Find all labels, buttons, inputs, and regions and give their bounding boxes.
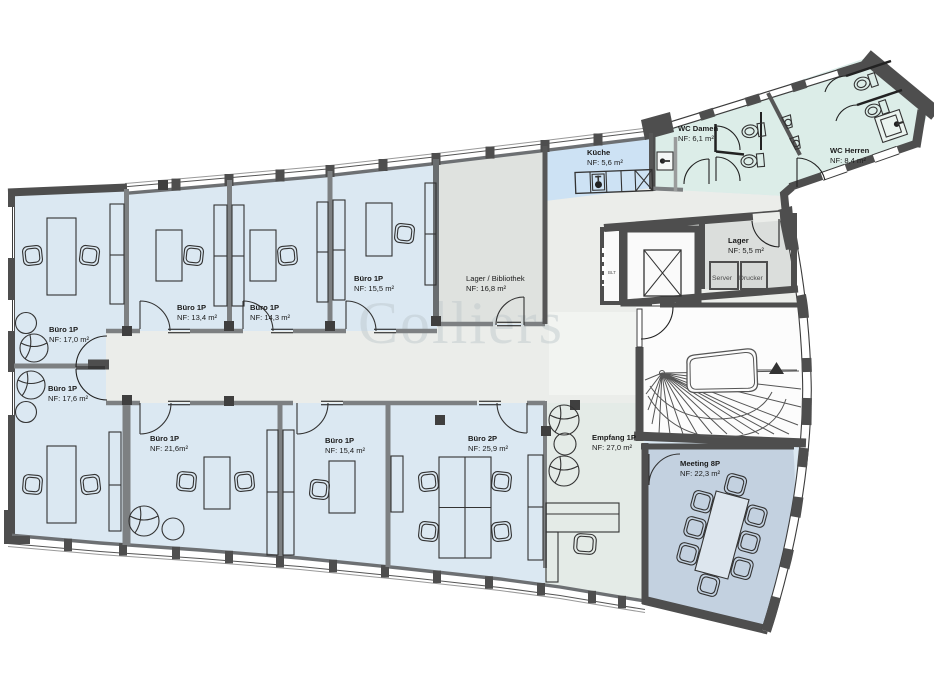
svg-text:Büro 1P: Büro 1P [48,384,77,393]
svg-text:NF: 16,8 m²: NF: 16,8 m² [466,284,507,293]
svg-text:BLT: BLT [608,270,616,275]
svg-text:Büro 2P: Büro 2P [468,434,497,443]
svg-text:NF: 6,1 m²: NF: 6,1 m² [678,134,714,143]
svg-text:NF: 5,5 m²: NF: 5,5 m² [728,246,764,255]
svg-text:NF: 15,4 m²: NF: 15,4 m² [325,446,366,455]
svg-text:NF: 22,3 m²: NF: 22,3 m² [680,469,721,478]
svg-text:Büro 1P: Büro 1P [250,303,279,312]
svg-text:NF: 27,0 m²: NF: 27,0 m² [592,443,633,452]
svg-text:NF: 5,6 m²: NF: 5,6 m² [587,158,623,167]
svg-text:Büro 1P: Büro 1P [325,436,354,445]
svg-text:Büro 1P: Büro 1P [150,434,179,443]
svg-text:Büro 1P: Büro 1P [354,274,383,283]
svg-text:WC Damen: WC Damen [678,124,718,133]
svg-text:NF: 17,0 m²: NF: 17,0 m² [49,335,90,344]
svg-text:NF: 21,6m²: NF: 21,6m² [150,444,188,453]
svg-text:NF: 13,4 m²: NF: 13,4 m² [177,313,218,322]
svg-text:Küche: Küche [587,148,610,157]
svg-text:Büro 1P: Büro 1P [177,303,206,312]
svg-text:Server: Server [712,275,733,282]
svg-text:WC Herren: WC Herren [830,146,870,155]
svg-text:NF: 25,9 m²: NF: 25,9 m² [468,444,509,453]
svg-text:NF: 14,3 m²: NF: 14,3 m² [250,313,291,322]
svg-text:NF: 15,5 m²: NF: 15,5 m² [354,284,395,293]
svg-text:NF: 8,4 m²: NF: 8,4 m² [830,156,866,165]
svg-text:Lager: Lager [728,236,749,245]
svg-text:Drucker: Drucker [739,275,764,282]
svg-text:NF: 17,6 m²: NF: 17,6 m² [48,394,89,403]
svg-text:Empfang 1P: Empfang 1P [592,433,636,442]
svg-text:Meeting 8P: Meeting 8P [680,459,720,468]
svg-text:Büro 1P: Büro 1P [49,325,78,334]
svg-text:Lager / Bibliothek: Lager / Bibliothek [466,274,525,283]
